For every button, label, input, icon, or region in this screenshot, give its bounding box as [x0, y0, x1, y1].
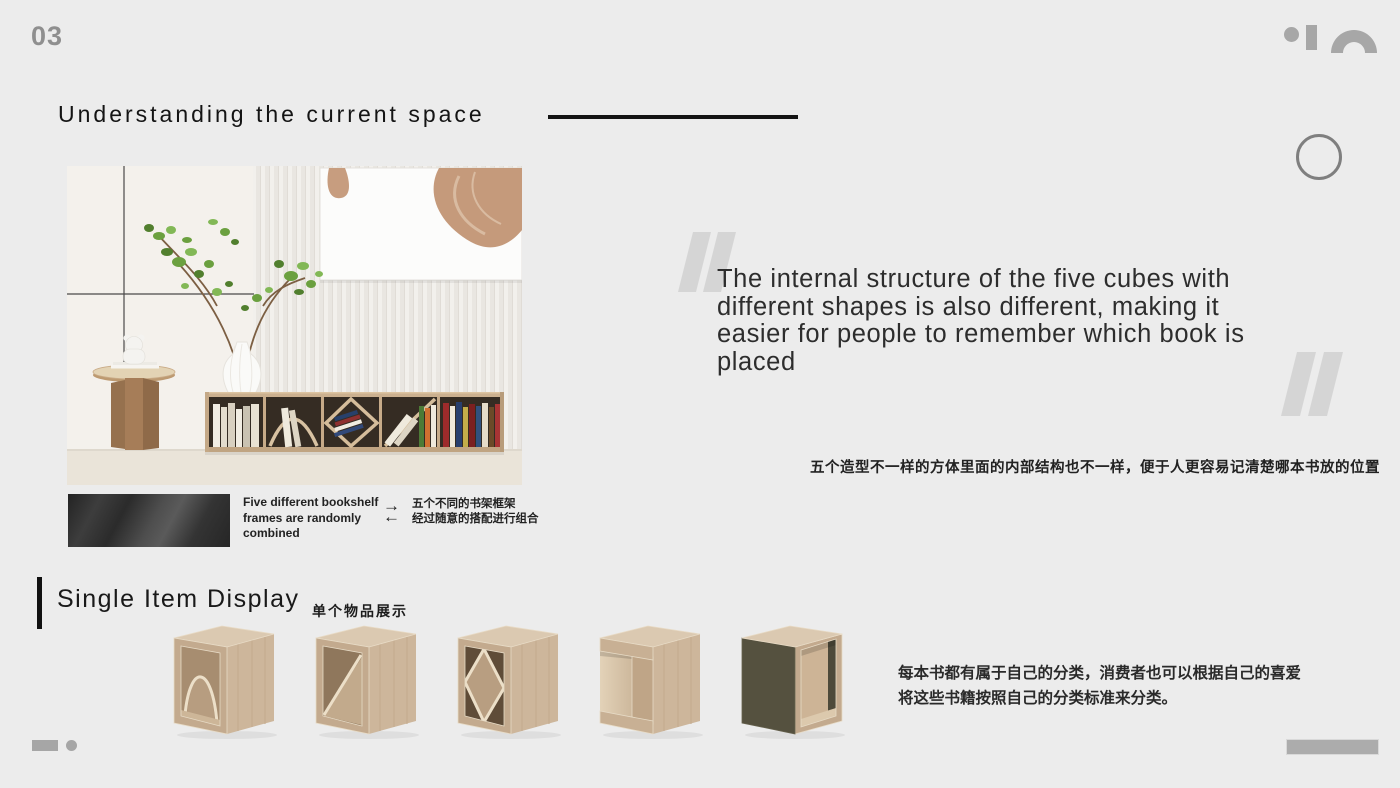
logo-dot-icon	[1284, 27, 1299, 42]
section-subtitle-zh: 单个物品展示	[312, 601, 408, 621]
description-zh: 每本书都有属于自己的分类，消费者也可以根据自己的喜爱 将这些书籍按照自己的分类标…	[898, 662, 1388, 711]
swap-arrows-icon: → ←	[383, 500, 400, 522]
footer-dot-decoration	[66, 740, 77, 751]
product-cube-arch	[170, 620, 285, 740]
footer-bar-decoration	[1286, 739, 1379, 755]
logo-bar-icon	[1306, 25, 1317, 50]
detail-caption-zh: 五个不同的书架框架 经过随意的搭配进行组合	[412, 497, 539, 527]
detail-thumbnail-image	[68, 494, 230, 547]
decorative-ring	[1296, 134, 1342, 180]
logo-arch-icon	[1331, 28, 1377, 53]
product-cube-diagonal	[312, 620, 427, 740]
title-underline	[548, 115, 798, 119]
section-accent-bar	[37, 577, 42, 629]
product-cube-dark-panel	[738, 620, 853, 740]
quote-line: easier for people to remember which book…	[717, 321, 1357, 349]
page-title: Understanding the current space	[58, 101, 485, 128]
room-photo-image	[67, 166, 522, 485]
detail-caption-zh-line2: 经过随意的搭配进行组合	[412, 512, 539, 527]
quote-line: The internal structure of the five cubes…	[717, 266, 1357, 294]
page-number: 03	[31, 21, 63, 52]
quote-line: placed	[717, 349, 1357, 377]
arrow-left-icon: ←	[383, 511, 400, 522]
quote-line: different shapes is also different, maki…	[717, 294, 1357, 322]
detail-caption-zh-line1: 五个不同的书架框架	[412, 497, 539, 512]
close-quote-icon	[1281, 352, 1343, 416]
footer-rect-decoration	[32, 740, 58, 751]
description-zh-line1: 每本书都有属于自己的分类，消费者也可以根据自己的喜爱	[898, 662, 1388, 687]
product-row	[170, 620, 853, 740]
note-zh: 五个造型不一样的方体里面的内部结构也不一样，便于人更容易记清楚哪本书放的位置	[810, 456, 1380, 477]
description-zh-line2: 将这些书籍按照自己的分类标准来分类。	[898, 687, 1388, 712]
quote-text: The internal structure of the five cubes…	[717, 266, 1357, 376]
product-cube-c-shape	[596, 620, 711, 740]
section-title: Single Item Display	[57, 585, 299, 614]
product-cube-diamond	[454, 620, 569, 740]
slide: 03 Understanding the current space	[0, 0, 1400, 788]
